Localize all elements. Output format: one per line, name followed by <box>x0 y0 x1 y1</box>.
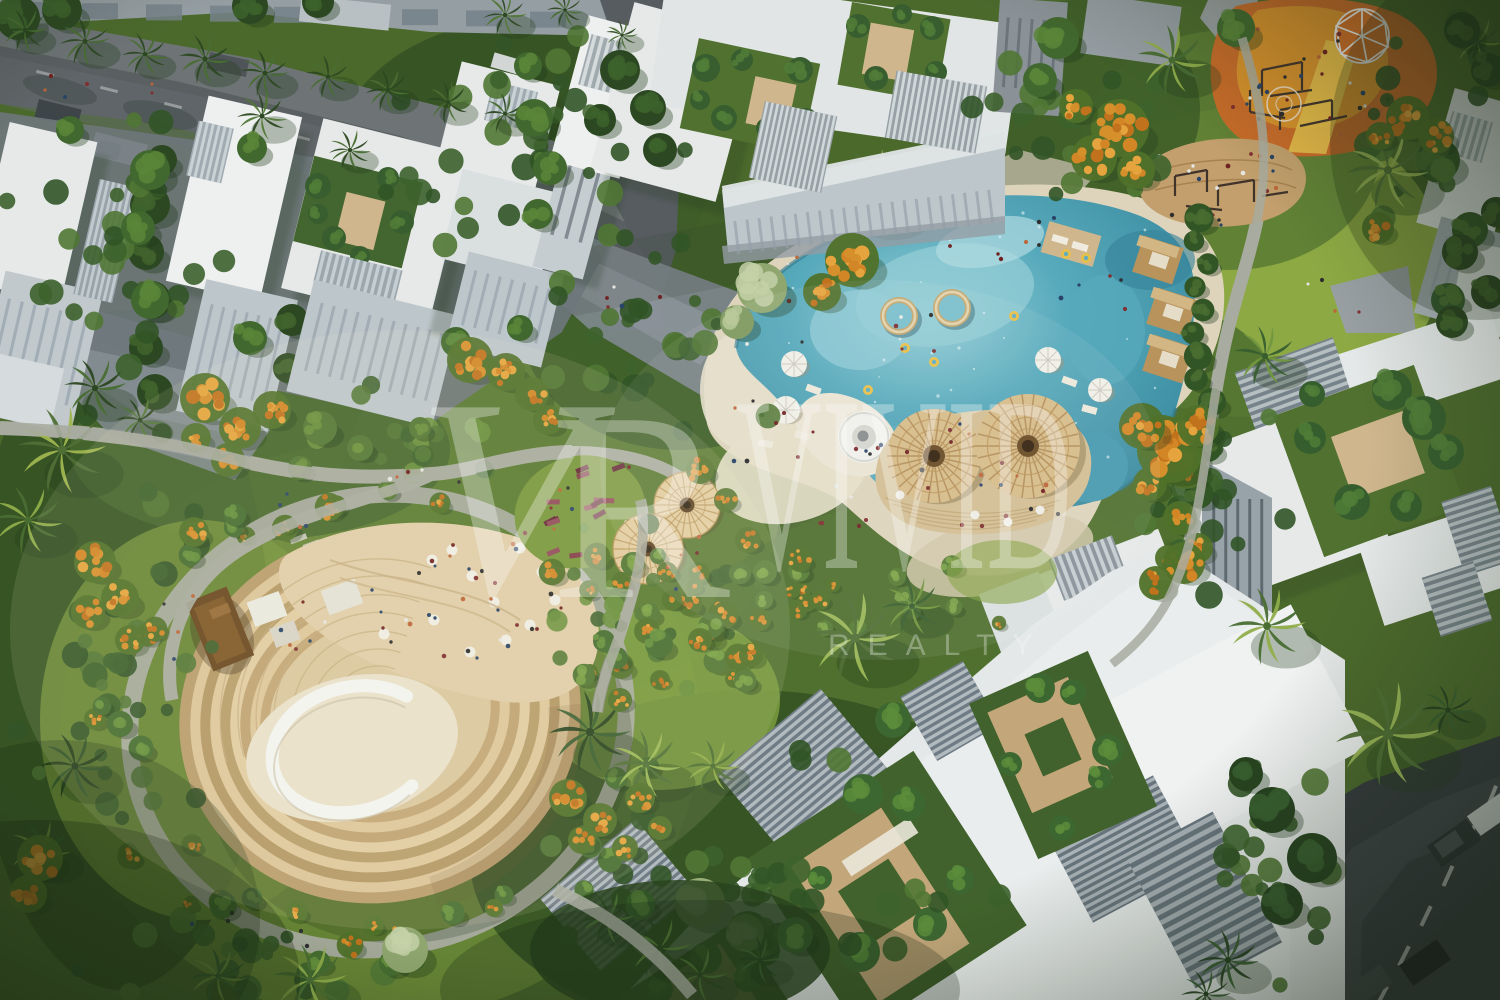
svg-text:R: R <box>550 357 731 656</box>
svg-text:REALTY: REALTY <box>828 629 1050 662</box>
svg-text:VIVID: VIVID <box>736 346 1072 623</box>
